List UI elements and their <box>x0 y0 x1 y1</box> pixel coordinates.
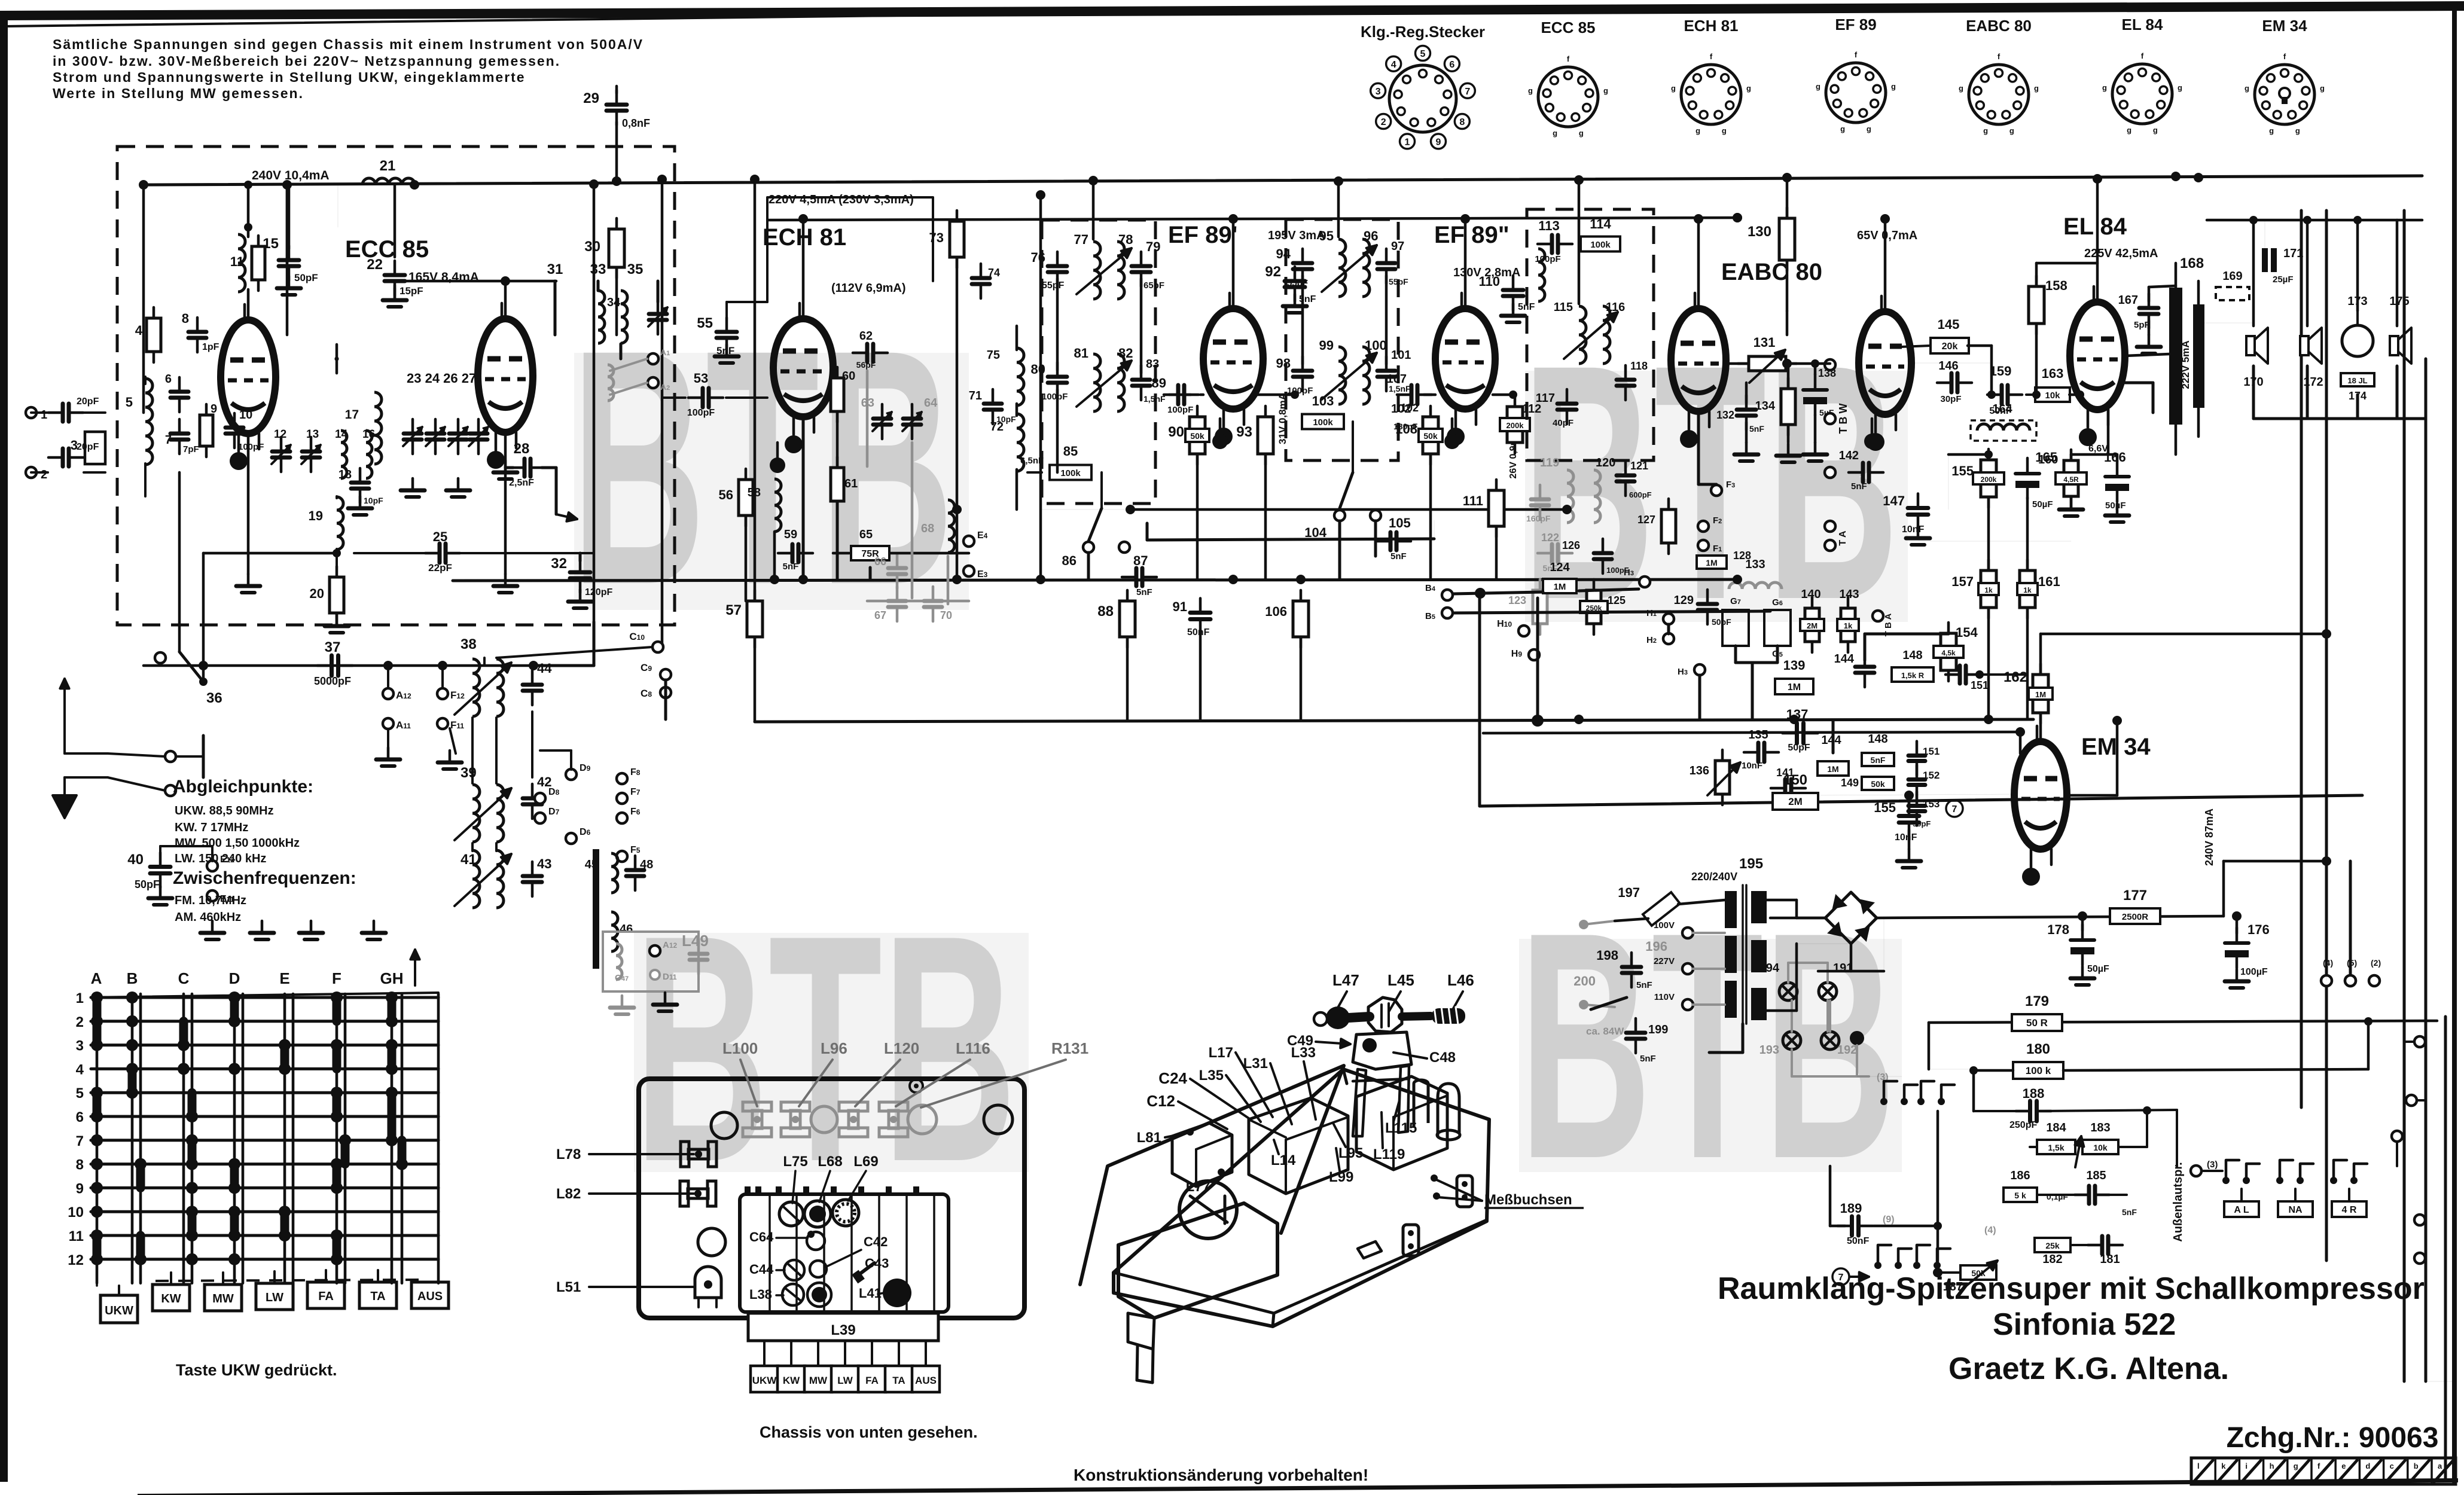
svg-text:198: 198 <box>1596 948 1618 963</box>
svg-text:7: 7 <box>1952 804 1957 814</box>
svg-text:g: g <box>2153 126 2158 135</box>
svg-text:100 k: 100 k <box>2026 1065 2051 1076</box>
svg-text:11: 11 <box>69 1228 84 1244</box>
svg-text:g: g <box>1816 82 1820 91</box>
svg-text:95: 95 <box>1319 228 1334 243</box>
svg-text:T A: T A <box>1838 530 1848 546</box>
svg-text:36: 36 <box>206 690 222 706</box>
svg-text:35: 35 <box>627 261 644 277</box>
svg-text:97: 97 <box>1391 240 1404 253</box>
svg-text:g: g <box>1528 86 1533 95</box>
svg-text:F6: F6 <box>630 807 641 817</box>
svg-text:55pF: 55pF <box>1042 280 1065 291</box>
svg-text:in 300V- bzw. 30V-Meßbereich: in 300V- bzw. 30V-Meßbereich bei 220V~ N… <box>53 53 560 69</box>
svg-text:240V 87mA: 240V 87mA <box>2203 808 2215 866</box>
svg-text:176: 176 <box>2248 922 2270 937</box>
svg-text:Taste UKW gedrückt.: Taste UKW gedrückt. <box>176 1361 337 1379</box>
svg-text:102: 102 <box>1401 402 1419 414</box>
svg-text:131: 131 <box>1754 335 1776 350</box>
svg-text:EF 89': EF 89' <box>1168 222 1237 248</box>
svg-text:48: 48 <box>640 858 653 871</box>
svg-text:600pF: 600pF <box>1629 490 1652 499</box>
svg-text:FA: FA <box>865 1375 879 1386</box>
svg-text:39: 39 <box>461 765 477 781</box>
svg-text:A12: A12 <box>663 940 678 950</box>
svg-text:50pF: 50pF <box>294 272 318 283</box>
svg-text:15: 15 <box>263 236 279 252</box>
svg-text:ECC 85: ECC 85 <box>345 236 429 263</box>
svg-text:152: 152 <box>1923 770 1940 781</box>
svg-text:g: g <box>2127 126 2131 135</box>
svg-text:AM. 460kHz: AM. 460kHz <box>175 911 241 924</box>
svg-text:12: 12 <box>68 1252 84 1268</box>
svg-text:EF 89": EF 89" <box>1434 222 1509 248</box>
svg-text:61: 61 <box>844 477 858 490</box>
svg-text:ca. 84W: ca. 84W <box>1586 1026 1624 1037</box>
svg-text:L68: L68 <box>818 1154 842 1170</box>
svg-text:f: f <box>1855 50 1858 59</box>
svg-text:72: 72 <box>990 420 1004 434</box>
svg-text:g: g <box>1722 126 1727 135</box>
svg-text:f: f <box>1567 54 1570 63</box>
svg-text:L35: L35 <box>1199 1067 1224 1084</box>
svg-text:5nF: 5nF <box>1851 481 1867 492</box>
svg-text:C48: C48 <box>1429 1049 1456 1066</box>
svg-text:185: 185 <box>2086 1169 2106 1182</box>
svg-text:158: 158 <box>2045 278 2067 293</box>
svg-text:41: 41 <box>461 852 477 868</box>
svg-text:118: 118 <box>1630 360 1648 372</box>
svg-text:Raumklang-Spitzensuper mit S: Raumklang-Spitzensuper mit Schallkompres… <box>1718 1271 2425 1306</box>
svg-text:C12: C12 <box>1146 1092 1175 1110</box>
svg-text:F5: F5 <box>630 845 641 855</box>
svg-text:A L: A L <box>2234 1205 2249 1215</box>
svg-text:5nF: 5nF <box>2122 1207 2137 1217</box>
svg-text:68: 68 <box>921 522 934 535</box>
svg-text:3: 3 <box>1376 87 1381 97</box>
svg-text:38: 38 <box>461 636 477 652</box>
svg-text:50k: 50k <box>1423 431 1438 441</box>
svg-text:4: 4 <box>76 1061 84 1078</box>
svg-text:7pF: 7pF <box>183 444 199 454</box>
svg-text:1M: 1M <box>1554 582 1566 592</box>
svg-text:E3: E3 <box>977 569 988 579</box>
svg-text:78: 78 <box>1118 232 1133 247</box>
svg-text:f: f <box>2141 51 2144 60</box>
svg-text:KW: KW <box>783 1375 800 1386</box>
svg-text:20: 20 <box>310 586 324 601</box>
svg-text:MW: MW <box>212 1292 234 1305</box>
svg-text:g: g <box>1695 126 1700 135</box>
svg-text:4: 4 <box>1391 60 1396 70</box>
svg-text:100pF: 100pF <box>687 408 715 418</box>
svg-text:167: 167 <box>2118 294 2138 307</box>
svg-text:91: 91 <box>1173 599 1187 614</box>
svg-text:65pF: 65pF <box>1143 280 1164 291</box>
svg-text:C43: C43 <box>865 1256 889 1271</box>
svg-text:g: g <box>1959 84 1963 93</box>
svg-text:10: 10 <box>68 1204 84 1221</box>
svg-text:32: 32 <box>551 556 567 572</box>
svg-text:L115: L115 <box>1385 1120 1417 1136</box>
svg-text:Chassis von unten gesehen.: Chassis von unten gesehen. <box>760 1423 978 1441</box>
svg-text:EL 84: EL 84 <box>2063 213 2127 240</box>
svg-text:94: 94 <box>1276 246 1291 261</box>
svg-text:240V 10,4mA: 240V 10,4mA <box>252 169 330 182</box>
svg-text:65: 65 <box>859 528 873 541</box>
svg-text:155: 155 <box>1951 463 1974 478</box>
svg-text:C64: C64 <box>749 1229 774 1244</box>
svg-text:L49: L49 <box>682 932 709 950</box>
svg-text:10nF: 10nF <box>1895 832 1917 843</box>
svg-text:227V: 227V <box>1654 956 1675 966</box>
svg-text:10nF: 10nF <box>1742 761 1762 771</box>
svg-text:5nF: 5nF <box>1136 587 1152 597</box>
svg-text:1k: 1k <box>2023 586 2032 594</box>
svg-text:100V: 100V <box>1654 920 1675 930</box>
svg-text:200: 200 <box>1573 974 1596 988</box>
svg-text:E4: E4 <box>977 530 988 541</box>
svg-text:149: 149 <box>1841 777 1859 789</box>
svg-text:D9: D9 <box>580 763 591 773</box>
svg-text:50k: 50k <box>1871 779 1885 789</box>
svg-text:FA: FA <box>318 1290 334 1303</box>
svg-text:2M: 2M <box>1788 796 1803 807</box>
svg-text:21: 21 <box>380 158 396 174</box>
svg-text:186: 186 <box>2010 1169 2030 1182</box>
svg-text:Strom und Spannungswerte in: Strom und Spannungswerte in Stellung UKW… <box>53 69 526 85</box>
svg-text:EL 84: EL 84 <box>2122 16 2163 33</box>
svg-text:55pF: 55pF <box>1287 278 1308 288</box>
svg-text:16: 16 <box>362 428 375 441</box>
svg-text:6: 6 <box>165 373 172 386</box>
svg-text:163: 163 <box>2042 366 2064 381</box>
svg-text:179: 179 <box>2025 993 2049 1009</box>
svg-text:g: g <box>2034 84 2039 93</box>
svg-text:127: 127 <box>1637 514 1655 526</box>
svg-text:g: g <box>2295 126 2300 135</box>
svg-text:(9): (9) <box>1883 1215 1895 1225</box>
svg-text:222V 5mA: 222V 5mA <box>2180 340 2191 389</box>
svg-text:122: 122 <box>1541 532 1559 544</box>
svg-text:(2): (2) <box>2371 958 2381 968</box>
svg-text:f: f <box>1998 52 2001 61</box>
svg-text:70: 70 <box>940 609 952 621</box>
svg-text:F7: F7 <box>630 787 641 797</box>
svg-text:a: a <box>2438 1462 2442 1470</box>
svg-text:20pF: 20pF <box>77 396 99 407</box>
svg-text:l: l <box>2197 1462 2200 1470</box>
svg-text:3: 3 <box>71 438 78 453</box>
svg-text:157: 157 <box>1951 574 1974 589</box>
svg-text:Abgleichpunkte:: Abgleichpunkte: <box>173 777 313 797</box>
svg-text:140: 140 <box>1801 588 1820 601</box>
svg-text:5nF: 5nF <box>1636 980 1652 990</box>
svg-text:178: 178 <box>2047 922 2069 937</box>
svg-text:g: g <box>1671 84 1676 93</box>
svg-text:25k: 25k <box>2045 1241 2060 1250</box>
svg-text:L81: L81 <box>1137 1130 1161 1146</box>
svg-text:10: 10 <box>239 408 252 422</box>
svg-text:132: 132 <box>1716 409 1734 421</box>
svg-text:L45: L45 <box>1387 971 1414 989</box>
svg-text:C42: C42 <box>864 1234 888 1249</box>
svg-text:119: 119 <box>1540 456 1559 469</box>
svg-text:NA: NA <box>2288 1205 2303 1215</box>
svg-text:10k: 10k <box>2093 1143 2108 1152</box>
svg-text:153: 153 <box>1923 798 1940 810</box>
svg-text:Sämtliche Spannungen sind g: Sämtliche Spannungen sind gegen Chassis … <box>53 36 644 52</box>
svg-text:H9: H9 <box>1511 649 1523 659</box>
svg-text:Außenlautspr.: Außenlautspr. <box>2172 1162 2185 1241</box>
svg-text:194: 194 <box>1759 962 1780 975</box>
svg-text:92: 92 <box>1265 264 1281 280</box>
svg-text:T B W: T B W <box>1837 404 1849 434</box>
svg-text:UKW: UKW <box>105 1304 133 1317</box>
svg-text:g: g <box>2294 1462 2298 1470</box>
svg-text:100pF: 100pF <box>1042 392 1068 402</box>
svg-text:TA: TA <box>892 1375 905 1386</box>
svg-text:L14: L14 <box>1271 1152 1296 1168</box>
svg-text:81: 81 <box>1074 346 1088 361</box>
svg-text:D8: D8 <box>548 787 560 797</box>
svg-text:162: 162 <box>2003 669 2027 685</box>
svg-text:UKW: UKW <box>752 1375 777 1386</box>
svg-text:5: 5 <box>76 1085 84 1102</box>
svg-text:56pF: 56pF <box>856 360 876 370</box>
svg-text:1: 1 <box>41 408 47 422</box>
svg-text:g: g <box>1579 129 1584 138</box>
svg-text:17: 17 <box>345 408 359 422</box>
svg-text:B: B <box>127 969 138 987</box>
svg-text:D6: D6 <box>580 827 591 837</box>
svg-text:Sinfonia 522: Sinfonia 522 <box>1993 1307 2176 1342</box>
svg-text:77: 77 <box>1074 232 1088 247</box>
svg-text:50µF: 50µF <box>2087 964 2109 974</box>
svg-text:98: 98 <box>1276 356 1291 371</box>
svg-text:g: g <box>2320 84 2325 93</box>
svg-text:29: 29 <box>583 90 599 106</box>
svg-text:190: 190 <box>1842 914 1860 926</box>
svg-text:120pF: 120pF <box>585 587 612 597</box>
svg-text:1k: 1k <box>1844 621 1853 630</box>
svg-text:80: 80 <box>1031 362 1045 377</box>
svg-text:50µF: 50µF <box>2032 499 2053 509</box>
svg-text:120: 120 <box>1596 456 1615 469</box>
svg-text:5: 5 <box>1420 49 1426 59</box>
svg-text:20pF: 20pF <box>77 442 99 452</box>
svg-text:g: g <box>1840 124 1845 133</box>
svg-text:100: 100 <box>1365 338 1387 353</box>
svg-text:15pF: 15pF <box>400 285 423 297</box>
svg-text:b: b <box>2414 1462 2419 1470</box>
svg-text:6,5nF: 6,5nF <box>1020 456 1044 466</box>
svg-text:168: 168 <box>2180 255 2204 271</box>
svg-text:11: 11 <box>230 254 244 269</box>
svg-text:D7: D7 <box>548 807 560 817</box>
svg-text:7: 7 <box>1465 87 1470 97</box>
svg-text:76: 76 <box>1031 250 1045 265</box>
svg-text:181: 181 <box>2100 1253 2120 1266</box>
svg-text:103: 103 <box>1312 393 1334 408</box>
svg-text:h: h <box>2270 1462 2274 1470</box>
svg-text:(4): (4) <box>2323 958 2333 968</box>
svg-text:L31: L31 <box>1243 1055 1268 1072</box>
svg-text:D: D <box>229 969 240 987</box>
svg-text:g: g <box>2245 84 2249 93</box>
svg-text:LW: LW <box>837 1375 853 1386</box>
svg-text:C44: C44 <box>749 1262 774 1277</box>
svg-text:188: 188 <box>2023 1086 2045 1101</box>
svg-text:108: 108 <box>1395 422 1417 437</box>
svg-text:H10: H10 <box>1497 619 1512 629</box>
svg-text:53: 53 <box>694 371 708 386</box>
svg-text:(112V 6,9mA): (112V 6,9mA) <box>831 282 906 295</box>
svg-text:96: 96 <box>1364 228 1378 243</box>
svg-text:23 24 26 27: 23 24 26 27 <box>407 371 476 386</box>
svg-text:100k: 100k <box>1590 240 1611 250</box>
svg-text:g: g <box>1746 84 1751 93</box>
svg-text:25µF: 25µF <box>2273 274 2294 285</box>
svg-text:126: 126 <box>1562 539 1580 551</box>
svg-text:123: 123 <box>1508 594 1526 606</box>
svg-text:14: 14 <box>335 428 348 441</box>
svg-text:Zchg.Nr.: 90063: Zchg.Nr.: 90063 <box>2227 1422 2439 1454</box>
svg-text:L39: L39 <box>831 1322 855 1338</box>
svg-text:58: 58 <box>748 486 761 499</box>
svg-text:151: 151 <box>1923 746 1940 757</box>
svg-text:5nF: 5nF <box>1640 1054 1656 1064</box>
svg-text:GH: GH <box>380 969 404 987</box>
svg-text:g: g <box>2178 83 2182 92</box>
svg-text:55pF: 55pF <box>1389 277 1408 286</box>
svg-text:Werte in Stellung MW gemes: Werte in Stellung MW gemessen. <box>53 86 304 101</box>
svg-text:160: 160 <box>2038 453 2058 466</box>
svg-text:121: 121 <box>1630 460 1648 472</box>
svg-text:160pF: 160pF <box>1526 514 1551 523</box>
svg-text:90: 90 <box>1168 424 1184 440</box>
svg-text:F8: F8 <box>630 767 641 777</box>
svg-text:154: 154 <box>1956 625 1978 640</box>
svg-text:65V 0,7mA: 65V 0,7mA <box>1857 229 1917 242</box>
svg-text:177: 177 <box>2123 887 2147 904</box>
svg-text:169: 169 <box>2222 270 2242 283</box>
svg-text:57: 57 <box>725 602 742 618</box>
svg-text:1M: 1M <box>1788 682 1801 692</box>
svg-text:L46: L46 <box>1447 971 1474 989</box>
svg-text:143: 143 <box>1839 588 1859 601</box>
svg-text:171: 171 <box>2283 247 2303 260</box>
svg-text:4 R: 4 R <box>2342 1205 2357 1215</box>
svg-text:L78: L78 <box>556 1146 581 1163</box>
svg-text:3: 3 <box>76 1038 84 1054</box>
svg-text:148: 148 <box>1868 733 1887 746</box>
svg-text:EABC 80: EABC 80 <box>1966 17 2032 35</box>
svg-text:LW. 150 240 kHz: LW. 150 240 kHz <box>175 852 266 865</box>
svg-text:Graetz K.G. Altena.: Graetz K.G. Altena. <box>1948 1351 2229 1386</box>
svg-text:R131: R131 <box>1051 1039 1088 1057</box>
svg-text:k: k <box>2221 1462 2226 1470</box>
svg-text:13: 13 <box>306 428 319 441</box>
svg-text:59: 59 <box>784 528 797 541</box>
svg-text:L99: L99 <box>1329 1169 1353 1185</box>
svg-text:100pF: 100pF <box>1167 405 1193 415</box>
svg-text:196: 196 <box>1645 939 1667 954</box>
svg-text:192: 192 <box>1837 1044 1857 1057</box>
svg-text:189: 189 <box>1840 1201 1862 1216</box>
svg-text:EM 34: EM 34 <box>2262 17 2307 35</box>
svg-text:151: 151 <box>1971 679 1989 691</box>
svg-text:10pF: 10pF <box>364 496 383 505</box>
svg-text:8: 8 <box>76 1157 84 1173</box>
svg-text:100k: 100k <box>1313 417 1333 428</box>
svg-text:5nF: 5nF <box>1390 551 1407 562</box>
svg-text:2,5nF: 2,5nF <box>509 478 534 488</box>
svg-text:L96: L96 <box>821 1039 847 1057</box>
svg-text:1k: 1k <box>1984 586 1993 594</box>
svg-text:139: 139 <box>1783 658 1806 673</box>
svg-text:8: 8 <box>1459 117 1465 127</box>
svg-text:33: 33 <box>590 261 606 277</box>
svg-text:113: 113 <box>1538 218 1560 233</box>
svg-text:64: 64 <box>924 396 938 410</box>
svg-text:D11: D11 <box>663 972 677 982</box>
svg-text:28: 28 <box>514 441 530 457</box>
svg-text:40: 40 <box>127 852 144 868</box>
svg-text:g: g <box>1603 86 1608 95</box>
svg-text:(5): (5) <box>2347 958 2357 968</box>
svg-text:4,5k: 4,5k <box>1941 649 1956 657</box>
svg-text:148: 148 <box>1902 649 1922 662</box>
svg-text:C: C <box>178 969 190 987</box>
svg-text:6: 6 <box>1449 60 1454 70</box>
svg-text:L75: L75 <box>783 1154 807 1170</box>
svg-text:50pF: 50pF <box>135 878 160 890</box>
svg-text:44: 44 <box>537 661 552 676</box>
svg-text:g: g <box>2009 126 2014 135</box>
svg-text:193: 193 <box>1759 1044 1779 1057</box>
svg-text:86: 86 <box>1062 553 1077 568</box>
svg-text:110: 110 <box>1479 274 1501 289</box>
svg-text:6: 6 <box>76 1109 84 1125</box>
svg-text:129: 129 <box>1674 594 1694 607</box>
svg-text:L95: L95 <box>1338 1145 1363 1161</box>
svg-text:88: 88 <box>1097 603 1114 620</box>
svg-text:195V 3mA: 195V 3mA <box>1268 229 1325 242</box>
svg-text:183: 183 <box>2090 1121 2110 1134</box>
svg-text:1: 1 <box>76 990 84 1006</box>
svg-text:Meßbuchsen: Meßbuchsen <box>1484 1192 1572 1208</box>
svg-text:1: 1 <box>1405 137 1410 147</box>
svg-text:g: g <box>1891 82 1896 91</box>
svg-text:EF 89: EF 89 <box>1835 16 1876 33</box>
svg-text:AUS: AUS <box>915 1375 937 1386</box>
svg-text:184: 184 <box>2046 1121 2066 1134</box>
svg-text:(3): (3) <box>2207 1160 2218 1170</box>
svg-text:82: 82 <box>1118 346 1133 361</box>
svg-text:50nF: 50nF <box>1187 627 1210 637</box>
svg-text:89: 89 <box>1152 376 1166 390</box>
svg-text:LW: LW <box>266 1291 283 1304</box>
svg-text:22pF: 22pF <box>428 562 452 573</box>
svg-text:22: 22 <box>367 257 383 273</box>
svg-text:101: 101 <box>1391 349 1411 362</box>
svg-text:150: 150 <box>1783 772 1807 788</box>
svg-text:182: 182 <box>2042 1253 2062 1266</box>
svg-text:F: F <box>332 969 341 987</box>
svg-text:100k: 100k <box>1060 468 1081 478</box>
svg-text:130: 130 <box>1748 224 1771 240</box>
